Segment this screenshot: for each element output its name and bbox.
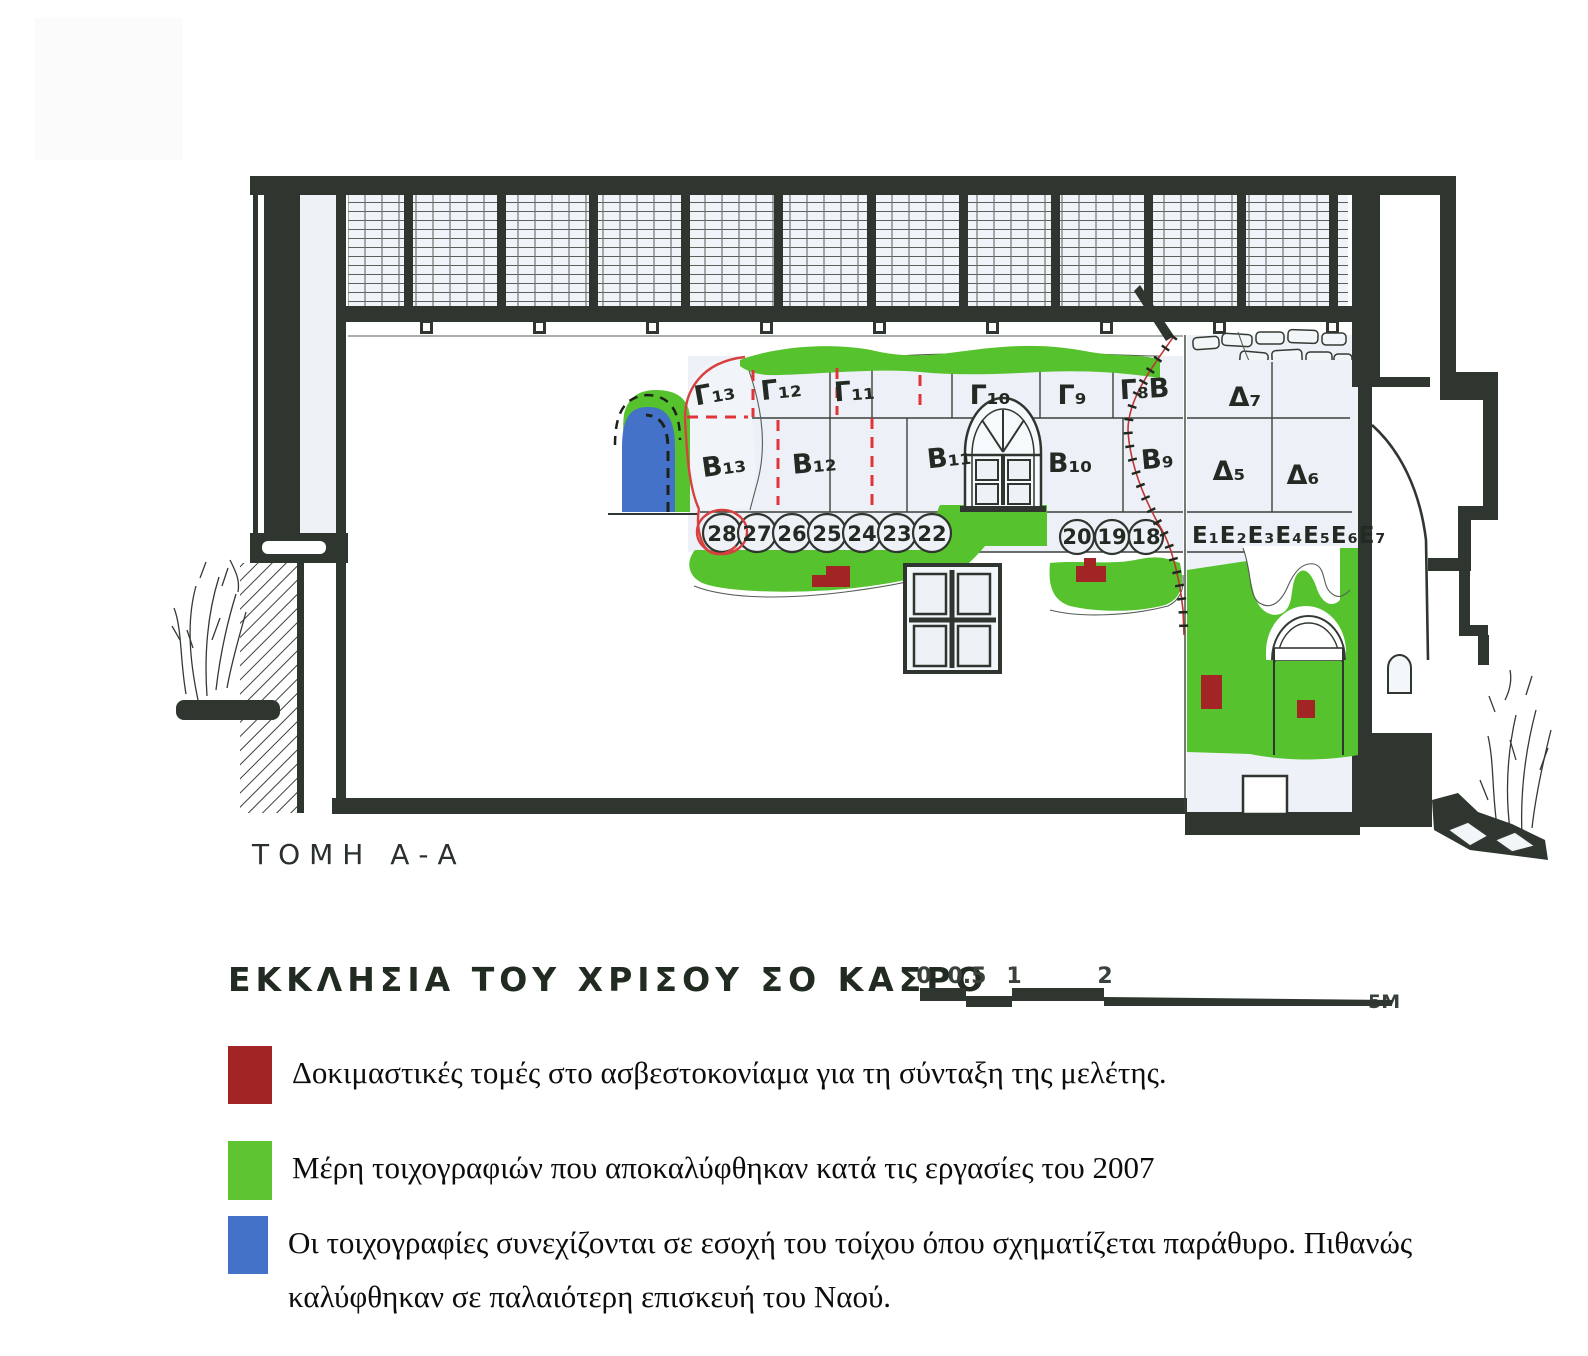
panel-label-g11: Γ₁₁ <box>833 375 876 409</box>
circle-number-25: 25 <box>812 522 841 546</box>
scale-bar: 0 0.5 1 2 5M <box>916 964 1400 1013</box>
circle-number-22: 22 <box>917 522 946 546</box>
blue-legend-label: Οι τοιχογραφίες συνεχίζονται σε εσοχή το… <box>288 1216 1523 1324</box>
circle-number-28: 28 <box>707 522 736 546</box>
circle-number-19: 19 <box>1097 525 1126 549</box>
panel-label-g10: Γ₁₀ <box>970 380 1011 411</box>
scale-tick-05: 0.5 <box>948 964 987 989</box>
epsilon-row-label: Ε₁Ε₂Ε₃Ε₄Ε₅Ε₆Ε₇ <box>1192 523 1387 549</box>
panel-label-b12: Β₁₂ <box>791 446 838 481</box>
drawing-title: ΕΚΚΛΗΣΙΑ ΤΟΥ ΧΡΙΣΟΥ ΣΟ ΚΑΣΡΟ <box>228 960 989 999</box>
panel-label-b11: Β₁₁ <box>925 440 972 475</box>
circle-number-27: 27 <box>742 522 771 546</box>
legend-row-blue: Οι τοιχογραφίες συνεχίζονται σε εσοχή το… <box>228 1216 1523 1324</box>
panel-label-b10: Β₁₀ <box>1048 448 1092 479</box>
panel-label-g12: Γ₁₂ <box>759 372 803 407</box>
scale-tick-0: 0 <box>916 964 931 989</box>
circle-number-26: 26 <box>777 522 806 546</box>
vegetation-right <box>1480 670 1551 835</box>
panel-label-d7: Δ₇ <box>1229 382 1262 413</box>
lower-right-wall-mass <box>1352 733 1432 827</box>
rocky-base <box>1432 793 1548 860</box>
church-section-drawing-page: Γ₁₃ Γ₁₂ Γ₁₁ Γ₁₀ Γ₉ Γ₈Β Δ₇ Β₁₃ Β₁₂ Β₁₁ Β₁… <box>0 0 1588 1356</box>
blue-swatch <box>228 1216 268 1274</box>
red-legend-label: Δοκιμαστικές τομές στο ασβεστοκονίαμα γι… <box>292 1046 1167 1100</box>
floor-box <box>1243 776 1287 814</box>
circle-number-23: 23 <box>882 522 911 546</box>
panel-label-b13: Β₁₃ <box>700 447 748 484</box>
ground-hatch <box>240 563 300 813</box>
roof-hangers <box>420 320 1339 334</box>
panel-label-b9: Β₉ <box>1140 443 1175 477</box>
left-wall <box>240 195 348 813</box>
lower-window <box>905 565 1000 672</box>
panel-label-d5: Δ₅ <box>1213 456 1246 487</box>
circle-number-18: 18 <box>1131 525 1160 549</box>
red-swatch <box>228 1046 272 1104</box>
scale-tick-1: 1 <box>1006 964 1021 989</box>
circle-number-24: 24 <box>847 522 876 546</box>
green-legend-label: Μέρη τοιχογραφιών που αποκαλύφθηκαν κατά… <box>292 1141 1155 1195</box>
green-swatch <box>228 1141 272 1200</box>
panel-label-g8b: Γ₈Β <box>1119 373 1170 407</box>
legend-row-red: Δοκιμαστικές τομές στο ασβεστοκονίαμα γι… <box>228 1046 1167 1104</box>
panel-label-g9: Γ₉ <box>1057 380 1086 411</box>
wall-niche-window <box>1388 655 1411 693</box>
circle-number-20: 20 <box>1062 525 1091 549</box>
legend-row-green: Μέρη τοιχογραφιών που αποκαλύφθηκαν κατά… <box>228 1141 1155 1200</box>
scale-tick-2: 2 <box>1097 964 1112 989</box>
panel-label-d6: Δ₆ <box>1287 460 1320 491</box>
roof-structure <box>250 176 1455 336</box>
sanctuary-niche <box>1266 606 1346 755</box>
green-below-18-20 <box>1050 557 1183 610</box>
section-label: ΤΟΜΗ Α-Α <box>251 838 466 871</box>
